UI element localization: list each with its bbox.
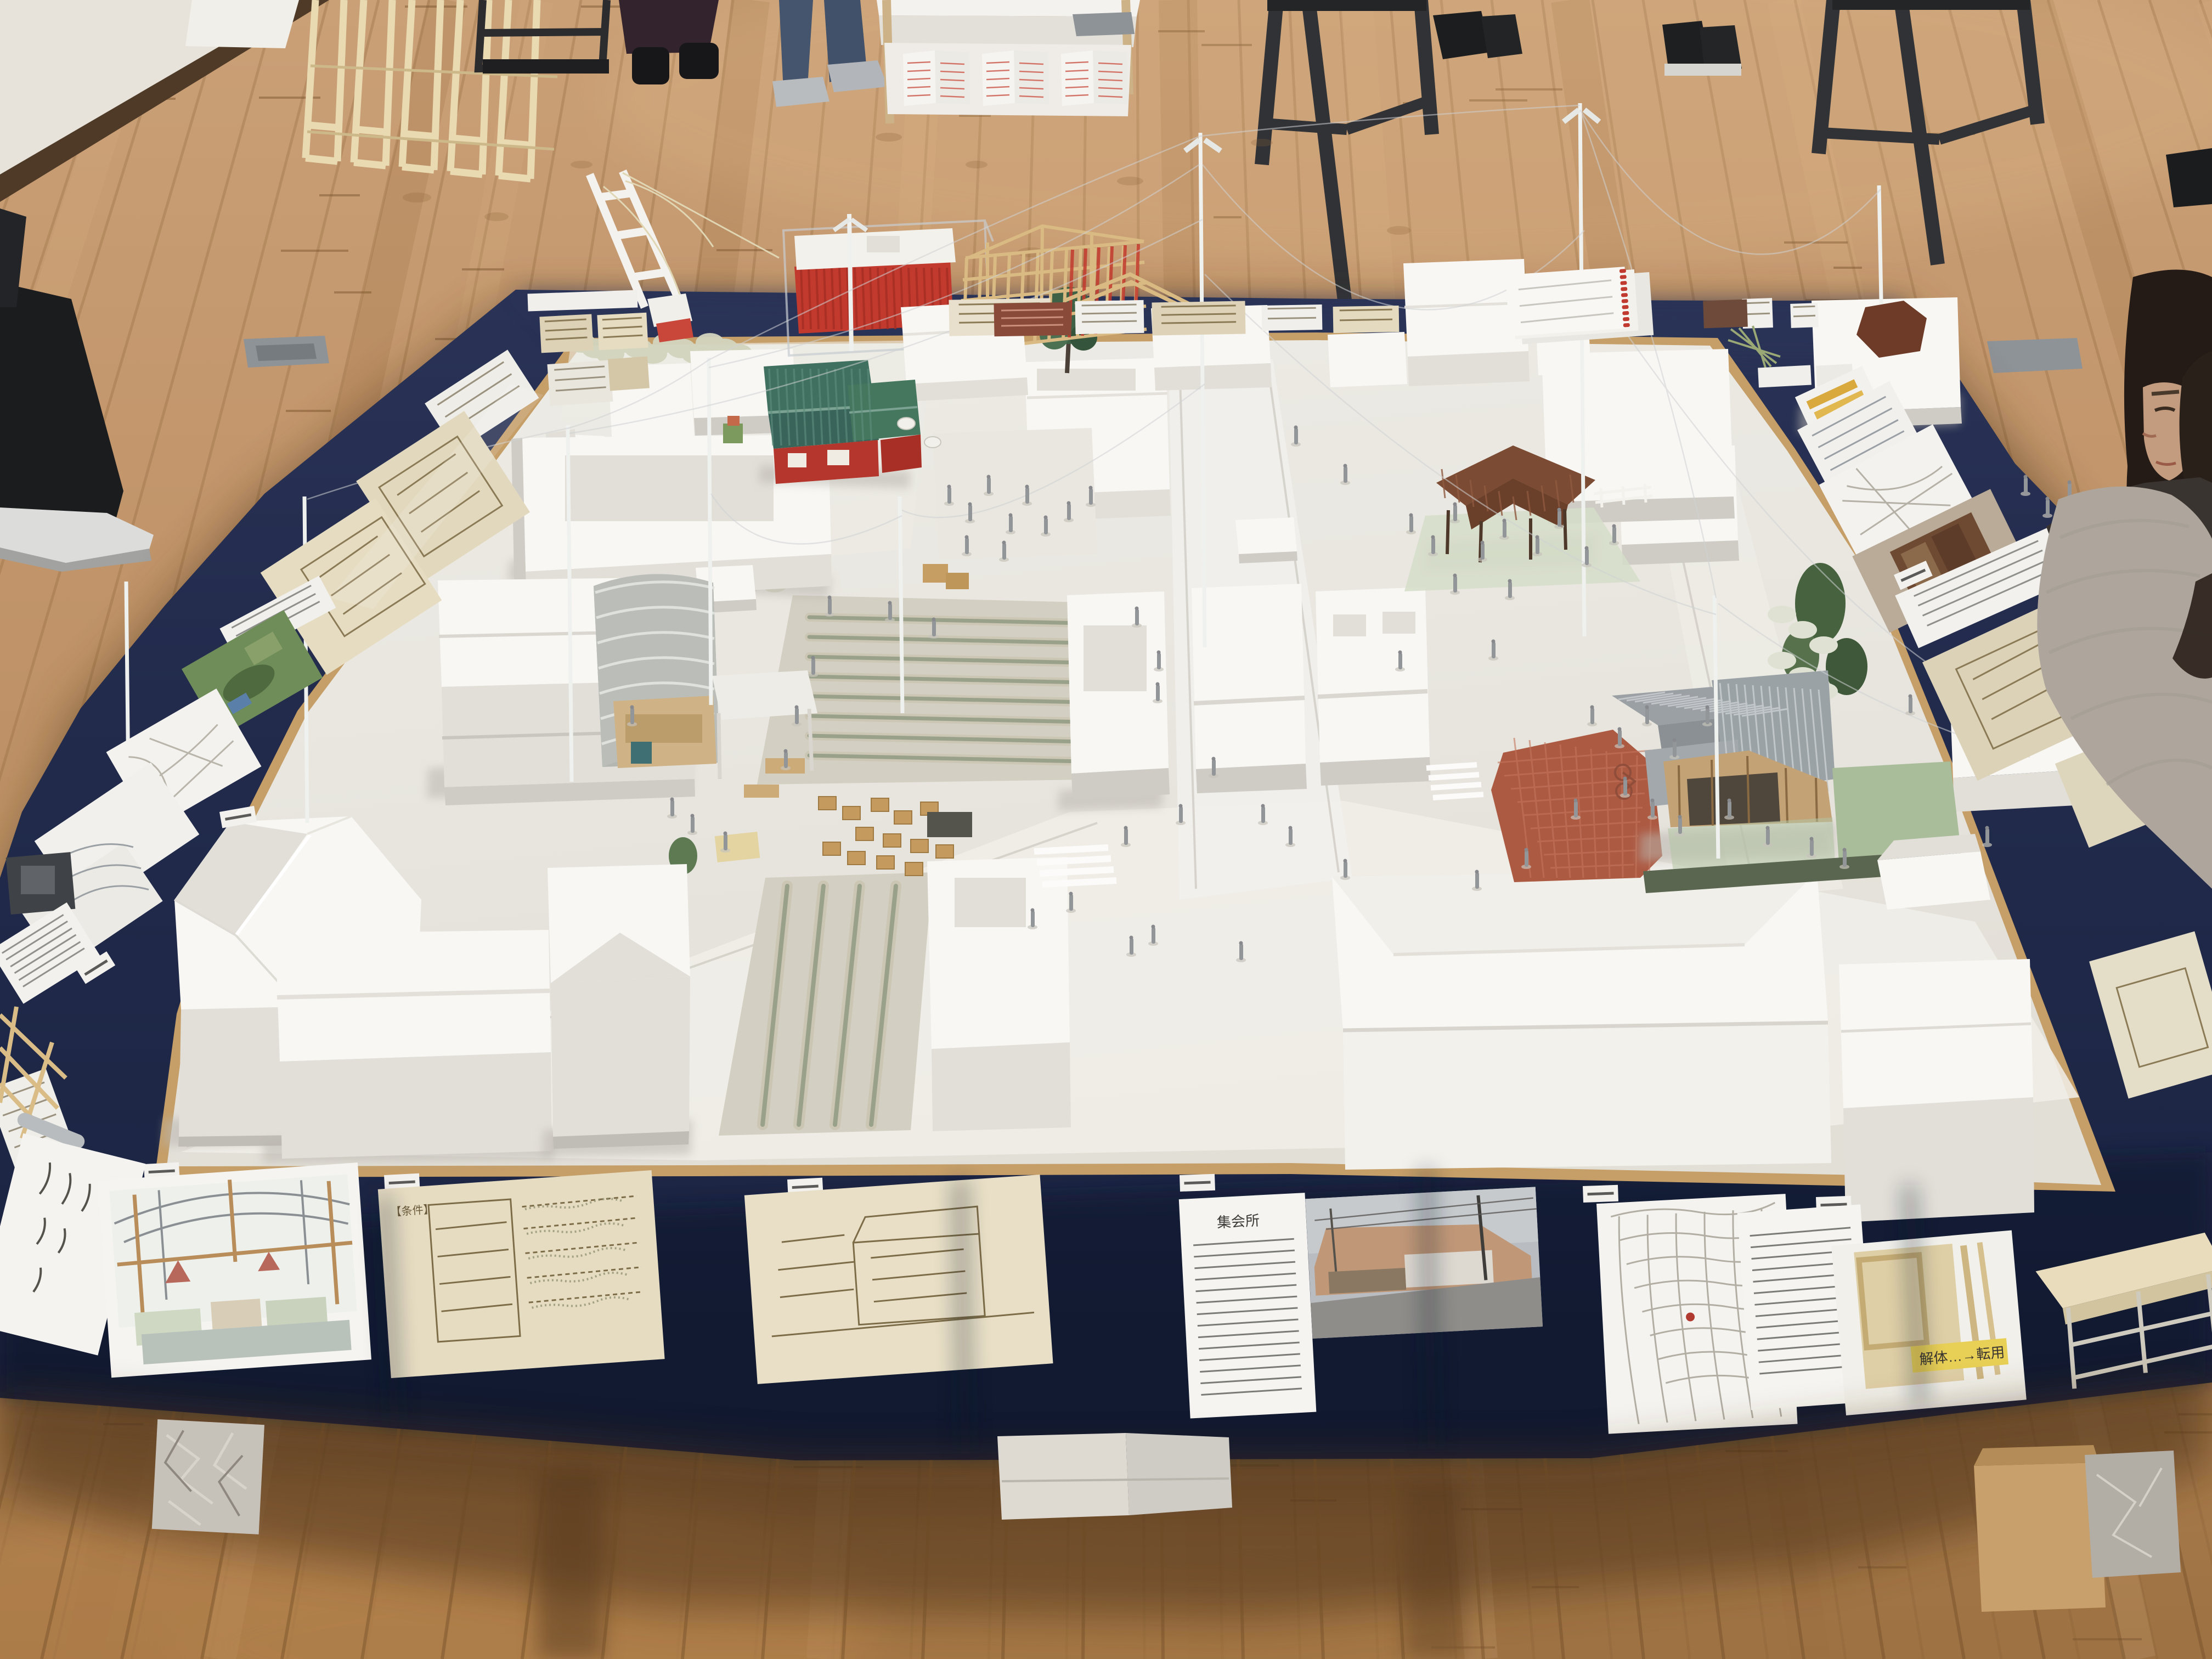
svg-text:集会所: 集会所 bbox=[1216, 1212, 1260, 1231]
